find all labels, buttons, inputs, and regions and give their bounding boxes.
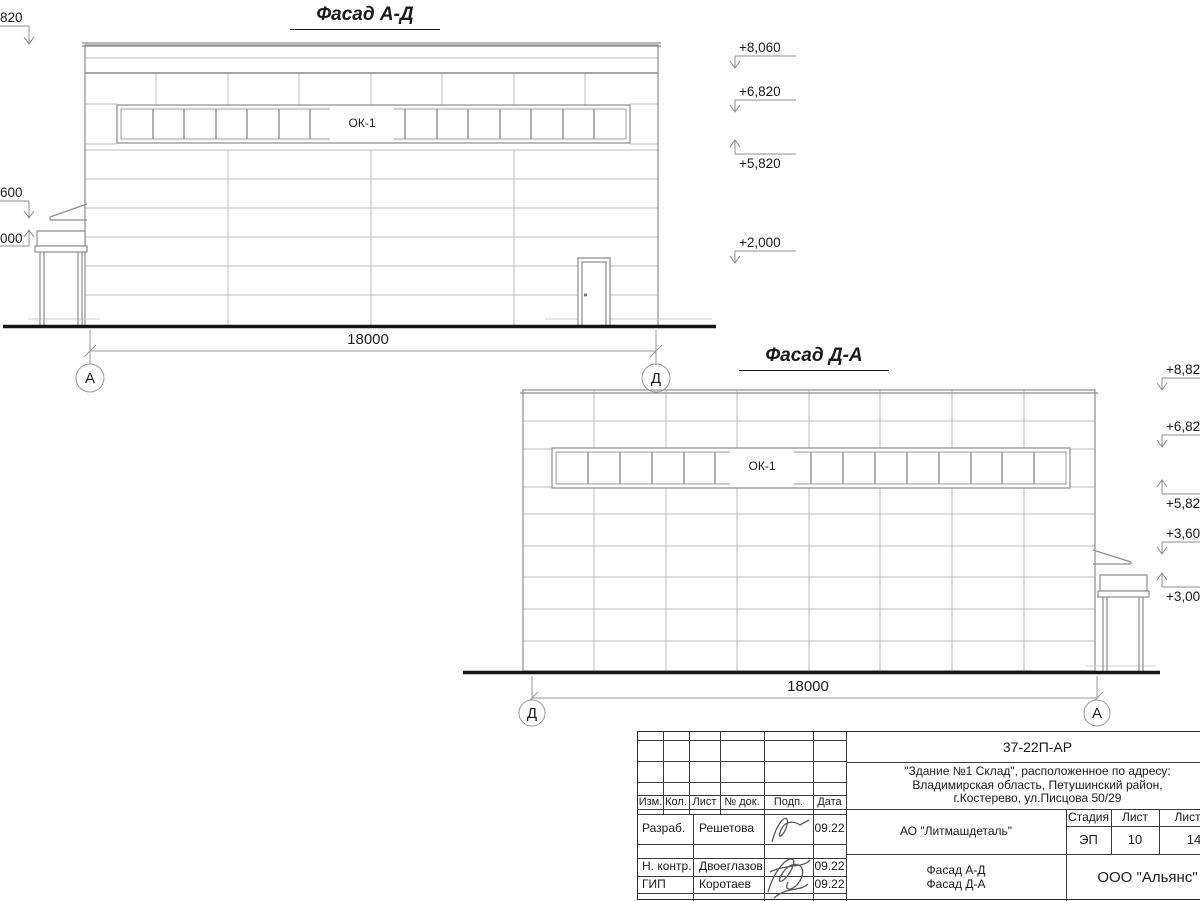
elevation-mark-glyphs [1157, 378, 1200, 587]
facade-da-dimension: 18000 [764, 678, 852, 695]
elevation-mark-label-cut: +3,00 [1166, 589, 1200, 604]
col-header-kol: Кол. [663, 795, 689, 809]
sheets-header: Листов [1159, 809, 1200, 826]
facade-da-linework [463, 378, 1200, 726]
facade-ad-window-label: ОК-1 [330, 116, 394, 130]
elevation-mark-label: +6,820 [739, 84, 781, 99]
stage-header: Стадия [1066, 809, 1111, 826]
sig-date: 09.22 [813, 858, 846, 876]
facade-da-axis-d: Д [518, 705, 546, 722]
porch-canopy-left [35, 204, 87, 326]
col-header-ndok: № док. [720, 795, 764, 809]
project-line3: г.Костерево, ул.Писцова 50/29 [954, 792, 1122, 806]
sheet-header: Лист [1111, 809, 1159, 826]
facade-ad-axis-d: Д [642, 370, 670, 387]
project-line1: "Здание №1 Склад", расположенное по адре… [904, 765, 1171, 779]
elevation-mark-label-cut: +3,60 [1166, 526, 1200, 541]
sig-role: Разраб. [638, 814, 693, 844]
elevation-mark-label-cut: +6,82 [1166, 419, 1200, 434]
signature-nkontr-gip [760, 848, 814, 900]
sheets-value: 14 [1159, 826, 1200, 854]
sig-name: Двоеглазов [695, 858, 764, 876]
elevation-mark-label-cut: +5,82 [1166, 496, 1200, 511]
elevation-mark-label-cut: 600 [0, 185, 23, 200]
elevation-mark-label: +2,000 [739, 235, 781, 250]
sheet-name: Фасад А-Д Фасад Д-А [846, 854, 1066, 901]
drawing-sheet: { "drawing": { "facade_ad": { "title": "… [0, 0, 1200, 900]
col-header-podp: Подп. [764, 795, 813, 809]
sheet-name-line1: Фасад А-Д [927, 864, 986, 878]
sig-role: ГИП [638, 876, 693, 893]
sig-role: Н. контр. [638, 858, 693, 876]
title-block: Изм. Кол. Лист № док. Подп. Дата Разраб.… [637, 731, 1200, 900]
sheet-value: 10 [1111, 826, 1159, 854]
col-header-izm: Изм. [638, 795, 663, 809]
facade-da-axis-a: А [1083, 705, 1111, 722]
doc-number: 37-22П-АР [846, 732, 1200, 762]
porch-canopy-right [1093, 550, 1149, 671]
sheet-name-line2: Фасад Д-А [927, 878, 986, 892]
sig-date: 09.22 [813, 814, 846, 844]
panel-vertical-joints [594, 390, 1024, 671]
elevation-mark-glyphs [0, 26, 796, 263]
sig-name: Коротаев [695, 876, 764, 893]
signature-razrab [766, 810, 812, 848]
facade-ad-axis-a: А [76, 370, 104, 387]
facade-ad-title: Фасад А-Д [290, 4, 440, 30]
stage-value: ЭП [1066, 826, 1111, 854]
elevation-mark-label-cut: 000 [0, 231, 23, 246]
window-band [552, 448, 1070, 488]
elevation-mark-label: +8,060 [739, 40, 781, 55]
organization-name: ООО "Альянс" [1066, 854, 1200, 901]
door-handle [584, 293, 587, 296]
elevation-mark-label-cut: +8,82 [1166, 362, 1200, 377]
col-header-data: Дата [813, 795, 846, 809]
facade-da-window-label: ОК-1 [730, 459, 794, 473]
facade-ad-dimension: 18000 [324, 331, 412, 348]
project-description: "Здание №1 Склад", расположенное по адре… [846, 762, 1200, 809]
entrance-door [578, 258, 610, 326]
facade-da-title: Фасад Д-А [739, 345, 889, 371]
elevation-mark-label-cut: 820 [0, 10, 23, 25]
col-header-list: Лист [689, 795, 720, 809]
project-line2: Владимирская область, Петушинский район, [912, 779, 1162, 793]
sig-name: Решетова [695, 814, 764, 844]
sig-date: 09.22 [813, 876, 846, 893]
client-name: АО "Литмашдеталь" [846, 809, 1066, 854]
elevation-mark-label: +5,820 [739, 156, 781, 171]
